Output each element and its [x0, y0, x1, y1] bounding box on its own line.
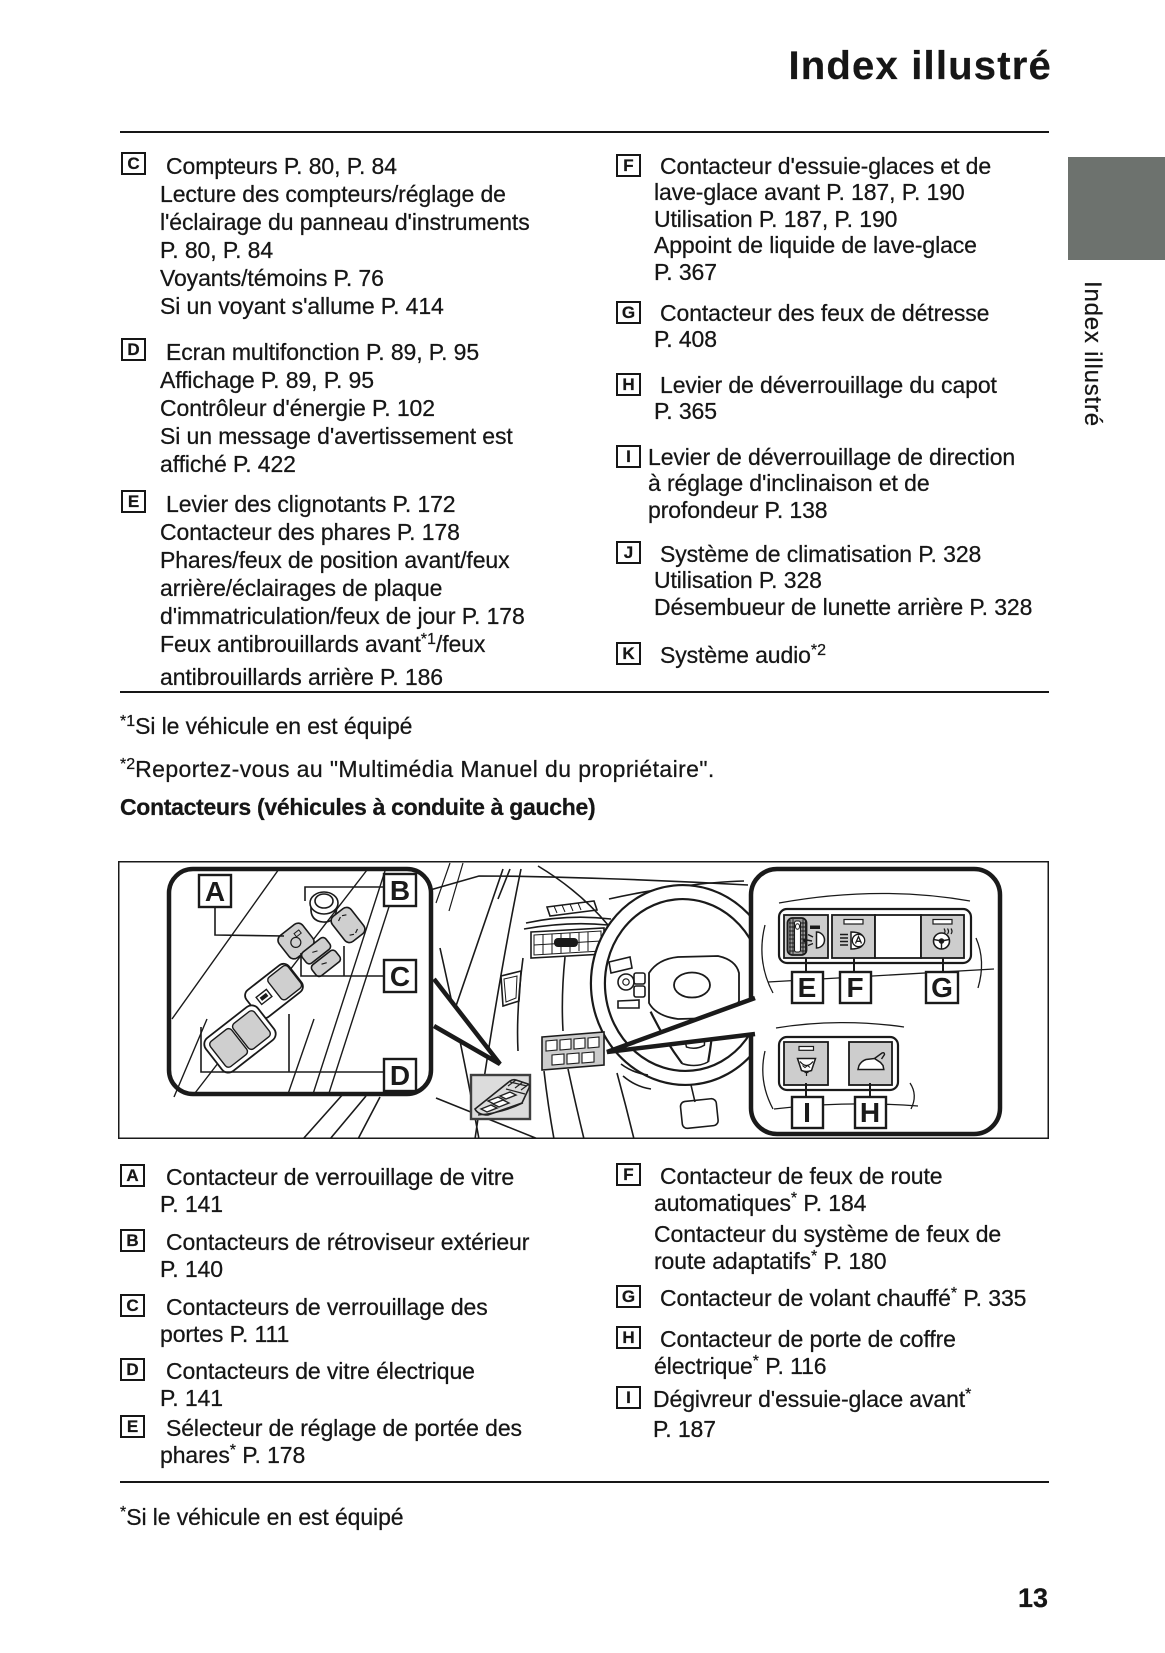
svg-text:F: F — [846, 972, 863, 1003]
svg-text:A: A — [205, 876, 225, 907]
svg-text:E: E — [798, 972, 817, 1003]
svg-text:D: D — [390, 1060, 410, 1091]
svg-text:B: B — [390, 875, 410, 906]
svg-text:I: I — [803, 1097, 811, 1128]
svg-text:C: C — [390, 961, 410, 992]
svg-text:G: G — [931, 972, 953, 1003]
svg-text:H: H — [860, 1097, 880, 1128]
